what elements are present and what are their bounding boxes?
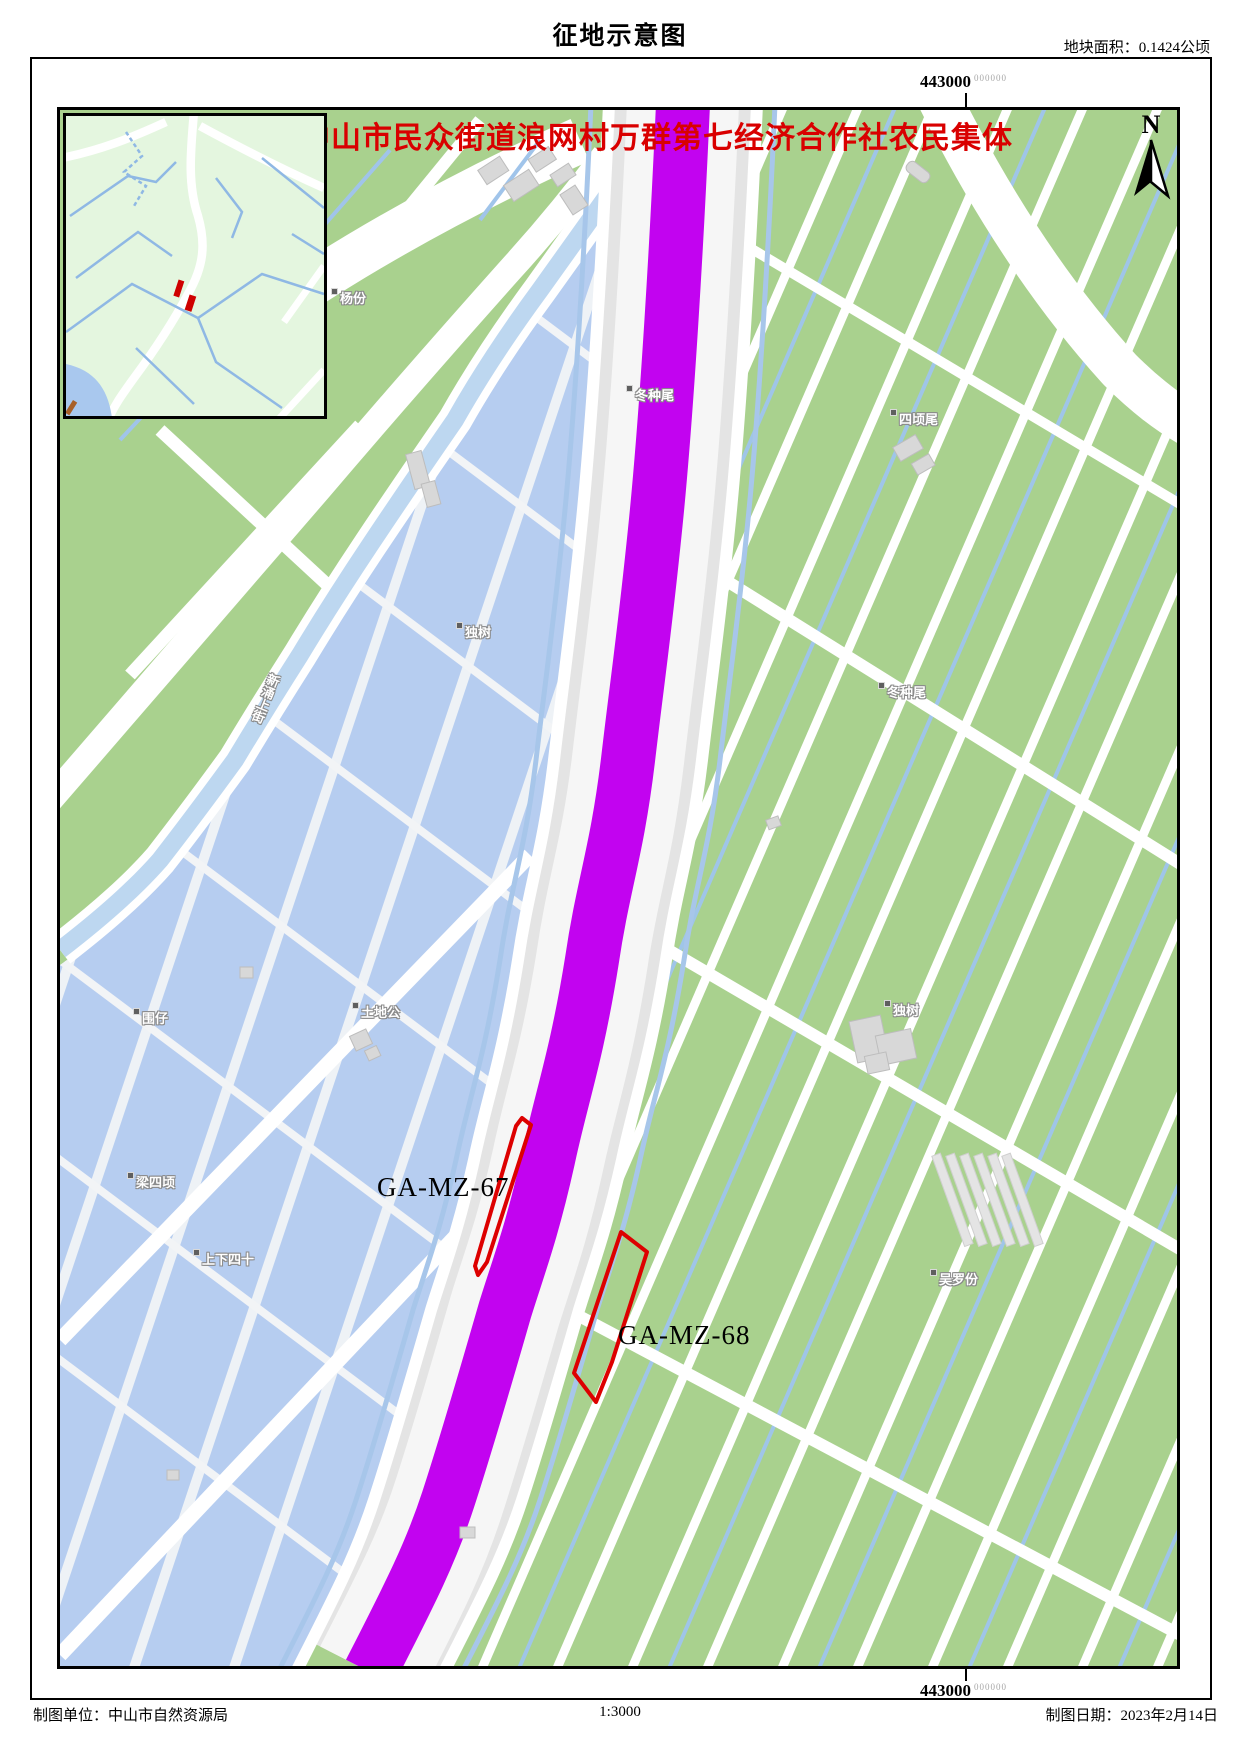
place-label: 四顷尾 (890, 409, 938, 428)
label-text: 围仔 (142, 1012, 168, 1027)
label-marker-icon (127, 1172, 134, 1179)
footer-date: 制图日期：2023年2月14日 (1045, 1704, 1218, 1725)
place-label: 冬种尾 (878, 682, 926, 701)
place-label: 独树 (456, 622, 491, 641)
label-text: 上下四十 (202, 1253, 254, 1268)
label-text: GA-MZ-67 (377, 1172, 509, 1202)
area-note: 地块面积：0.1424公顷 (1064, 36, 1210, 57)
coordinate-bottom-main: 443000 (920, 1681, 971, 1700)
label-marker-icon (331, 288, 338, 295)
label-text: 梁四顷 (136, 1176, 175, 1191)
labels-layer: 杨份冬种尾四顷尾独树新涌上街冬种尾土地公围仔独树梁四顷上下四十吴罗份GA-MZ-… (60, 110, 1177, 1666)
map-frame: 中山市民众街道浪网村万群第七经济合作社农民集体 N (57, 107, 1180, 1669)
label-marker-icon (878, 682, 885, 689)
label-marker-icon (193, 1249, 200, 1256)
place-label: 冬种尾 (626, 385, 674, 404)
label-text: 冬种尾 (635, 389, 674, 404)
place-label: 独树 (884, 1000, 919, 1019)
label-text: 冬种尾 (887, 686, 926, 701)
coordinate-tick-top (965, 93, 967, 107)
coordinate-top-sup: 000000 (974, 73, 1007, 83)
place-label: 土地公 (352, 1002, 400, 1021)
label-text: 独树 (465, 626, 491, 641)
label-marker-icon (352, 1002, 359, 1009)
label-text: 土地公 (361, 1006, 400, 1021)
coordinate-label-top: 443000000000 (920, 72, 1007, 92)
label-marker-icon (890, 409, 897, 416)
coordinate-tick-bottom (965, 1669, 967, 1681)
place-label: 杨份 (331, 288, 366, 307)
coordinate-top-main: 443000 (920, 72, 971, 91)
label-text: GA-MZ-68 (618, 1320, 750, 1350)
label-text: 四顷尾 (899, 413, 938, 428)
label-marker-icon (133, 1008, 140, 1015)
parcel-label: GA-MZ-67 (377, 1172, 509, 1203)
label-text: 独树 (893, 1004, 919, 1019)
label-marker-icon (626, 385, 633, 392)
label-marker-icon (930, 1269, 937, 1276)
parcel-label: GA-MZ-68 (618, 1320, 750, 1351)
place-label: 梁四顷 (127, 1172, 175, 1191)
label-text: 杨份 (340, 292, 366, 307)
place-label: 吴罗份 (930, 1269, 978, 1288)
coordinate-bottom-sup: 000000 (974, 1682, 1007, 1692)
label-text: 吴罗份 (939, 1273, 978, 1288)
page-title: 征地示意图 (0, 16, 1240, 52)
label-marker-icon (456, 622, 463, 629)
label-text: 新涌上街 (247, 671, 280, 725)
place-label: 围仔 (133, 1008, 168, 1027)
place-label: 新涌上街 (246, 670, 283, 725)
coordinate-label-bottom: 443000000000 (920, 1681, 1007, 1701)
place-label: 上下四十 (193, 1249, 254, 1268)
label-marker-icon (884, 1000, 891, 1007)
sheet: 征地示意图 地块面积：0.1424公顷 443000000000 (0, 0, 1240, 1754)
